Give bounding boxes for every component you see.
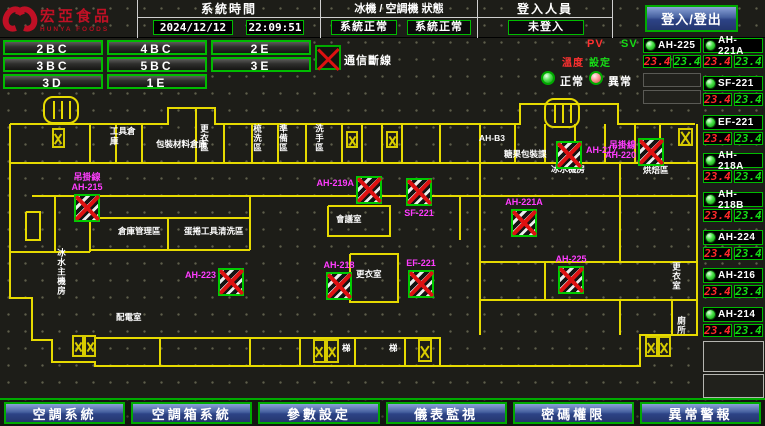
floor-button-2e[interactable]: 2E — [211, 40, 311, 55]
room-label: 更衣室 — [356, 270, 382, 280]
status-led-icon — [705, 117, 716, 128]
device-ah-219a[interactable] — [356, 176, 382, 204]
unit-sv-value: 23.4 — [673, 55, 701, 68]
unit-sv-value: 23.4 — [734, 247, 763, 260]
device-ah-215[interactable] — [74, 194, 100, 222]
room-label: 洗手區 — [314, 124, 324, 153]
room-label: 配電室 — [116, 313, 142, 323]
unit-ah-214[interactable]: AH-214 — [703, 307, 763, 322]
floor-button-2bc[interactable]: 2BC — [3, 40, 103, 55]
scada-screen: 宏亞食品 HUNYA FOODS 系統時間 2024/12/12 22:09:5… — [0, 0, 765, 426]
unit-pv-value: 23.4 — [703, 285, 732, 298]
device-ah-223[interactable] — [218, 268, 244, 296]
device-sf-221[interactable] — [406, 178, 432, 206]
status-led-icon — [705, 232, 716, 243]
status-led-icon — [705, 194, 716, 205]
status-led-icon — [705, 309, 716, 320]
room-label: AH-B3 — [479, 134, 505, 144]
device-label: AH-218 — [310, 260, 368, 270]
unit-ah-216[interactable]: AH-216 — [703, 268, 763, 283]
unit-pv-value: 23.4 — [703, 209, 732, 222]
unit-pv-value: 23.4 — [643, 55, 671, 68]
floor-button-3e[interactable]: 3E — [211, 57, 311, 72]
unit-name: AH-214 — [718, 309, 755, 320]
device-ah-217[interactable] — [556, 141, 582, 169]
unit-ah-218a[interactable]: AH-218A — [703, 153, 763, 168]
stairs-icon — [346, 131, 358, 148]
device-ah-220[interactable] — [638, 138, 664, 166]
room-label: 梳洗區 — [252, 124, 262, 153]
room-label: 倉庫管理區 — [118, 227, 161, 237]
floor-button-3bc[interactable]: 3BC — [3, 57, 103, 72]
floor-button-3d[interactable]: 3D — [3, 74, 103, 89]
unit-ah-225[interactable]: AH-225 — [643, 38, 701, 53]
unit-pv-value: 23.4 — [703, 170, 732, 183]
unit-sv-value: 23.4 — [734, 285, 763, 298]
floor-button-4bc[interactable]: 4BC — [107, 40, 207, 55]
stairs-icon — [72, 335, 84, 357]
nav-ac-system[interactable]: 空調系統 — [4, 402, 125, 424]
room-label: 梯 — [389, 344, 398, 354]
status-led-icon — [705, 40, 716, 51]
nav-password-auth[interactable]: 密碼權限 — [513, 402, 634, 424]
room-label: 廁所 — [676, 316, 686, 335]
nav-meter-monitor[interactable]: 儀表監視 — [386, 402, 507, 424]
unit-name: AH-221A — [718, 35, 762, 57]
stairs-icon — [418, 339, 432, 362]
unit-pv-value: 23.4 — [703, 93, 732, 106]
unit-sf-221[interactable]: SF-221 — [703, 76, 763, 91]
device-label: AH-223 — [164, 270, 216, 280]
unit-ah-224[interactable]: AH-224 — [703, 230, 763, 245]
bottom-nav: 空調系統空調箱系統參數設定儀表監視密碼權限異常警報 — [0, 398, 765, 426]
unit-sv-value: 23.4 — [734, 170, 763, 183]
empty-panel — [703, 341, 764, 372]
unit-sv-value: 23.4 — [734, 93, 763, 106]
room-label: 烘焙區 — [643, 166, 669, 176]
room-label: 梯 — [342, 344, 351, 354]
unit-pv-value: 23.4 — [703, 132, 732, 145]
nav-alarm[interactable]: 異常警報 — [640, 402, 761, 424]
stairs-icon — [313, 339, 326, 363]
unit-ef-221[interactable]: EF-221 — [703, 115, 763, 130]
floor-button-5bc[interactable]: 5BC — [107, 57, 207, 72]
device-ah-225[interactable] — [558, 266, 584, 294]
unit-pv-value: 23.4 — [703, 247, 732, 260]
stairs-icon — [678, 128, 693, 146]
empty-panel — [703, 374, 764, 398]
device-ah-218[interactable] — [326, 272, 352, 300]
room-label: 糖果包裝課 — [504, 150, 547, 160]
nav-param-setting[interactable]: 參數設定 — [258, 402, 379, 424]
empty-slot — [643, 73, 701, 87]
unit-name: AH-224 — [718, 232, 755, 243]
unit-sv-value: 23.4 — [734, 209, 763, 222]
unit-sv-value: 23.4 — [734, 132, 763, 145]
unit-name: EF-221 — [718, 117, 754, 128]
empty-slot — [643, 90, 701, 104]
room-label: 冰水主機房 — [56, 248, 66, 296]
device-label: SF-221 — [390, 208, 448, 218]
nav-ahu-system[interactable]: 空調箱系統 — [131, 402, 252, 424]
status-led-icon — [705, 78, 716, 89]
stairs-icon — [386, 131, 398, 148]
unit-name: AH-225 — [658, 40, 695, 51]
device-label: 吊掛線AH-220 — [584, 140, 636, 160]
room-label: 更衣區 — [199, 124, 209, 153]
unit-ah-221a[interactable]: AH-221A — [703, 38, 763, 53]
unit-sv-value: 23.4 — [734, 324, 763, 337]
unit-ah-218b[interactable]: AH-218B — [703, 192, 763, 207]
room-label: 更衣室 — [671, 262, 681, 291]
unit-pv-value: 23.4 — [703, 324, 732, 337]
stairs-icon — [658, 336, 671, 357]
unit-name: AH-218B — [718, 189, 762, 211]
device-ah-221a[interactable] — [511, 209, 537, 237]
stairs-icon — [52, 128, 65, 148]
device-label: AH-219A — [302, 178, 354, 188]
device-label: 吊掛線AH-215 — [58, 172, 116, 192]
room-label: 會議室 — [336, 215, 362, 225]
stairs-icon — [84, 335, 96, 357]
unit-name: AH-218A — [718, 150, 762, 172]
unit-name: AH-216 — [718, 270, 755, 281]
room-label: 蛋捲工具清洗區 — [184, 227, 244, 237]
device-ef-221[interactable] — [408, 270, 434, 298]
device-label: EF-221 — [392, 258, 450, 268]
room-label: 準備區 — [278, 124, 288, 153]
status-led-icon — [705, 270, 716, 281]
device-label: AH-221A — [495, 197, 553, 207]
unit-name: SF-221 — [718, 78, 754, 89]
stairs-icon — [645, 336, 658, 357]
device-label: AH-225 — [542, 254, 600, 264]
status-led-icon — [705, 155, 716, 166]
room-label: 工具倉庫 — [110, 127, 136, 146]
unit-pv-value: 23.4 — [703, 55, 732, 68]
unit-sv-value: 23.4 — [734, 55, 763, 68]
floor-button-1e[interactable]: 1E — [107, 74, 207, 89]
status-led-icon — [645, 40, 656, 51]
stairs-icon — [326, 339, 339, 363]
